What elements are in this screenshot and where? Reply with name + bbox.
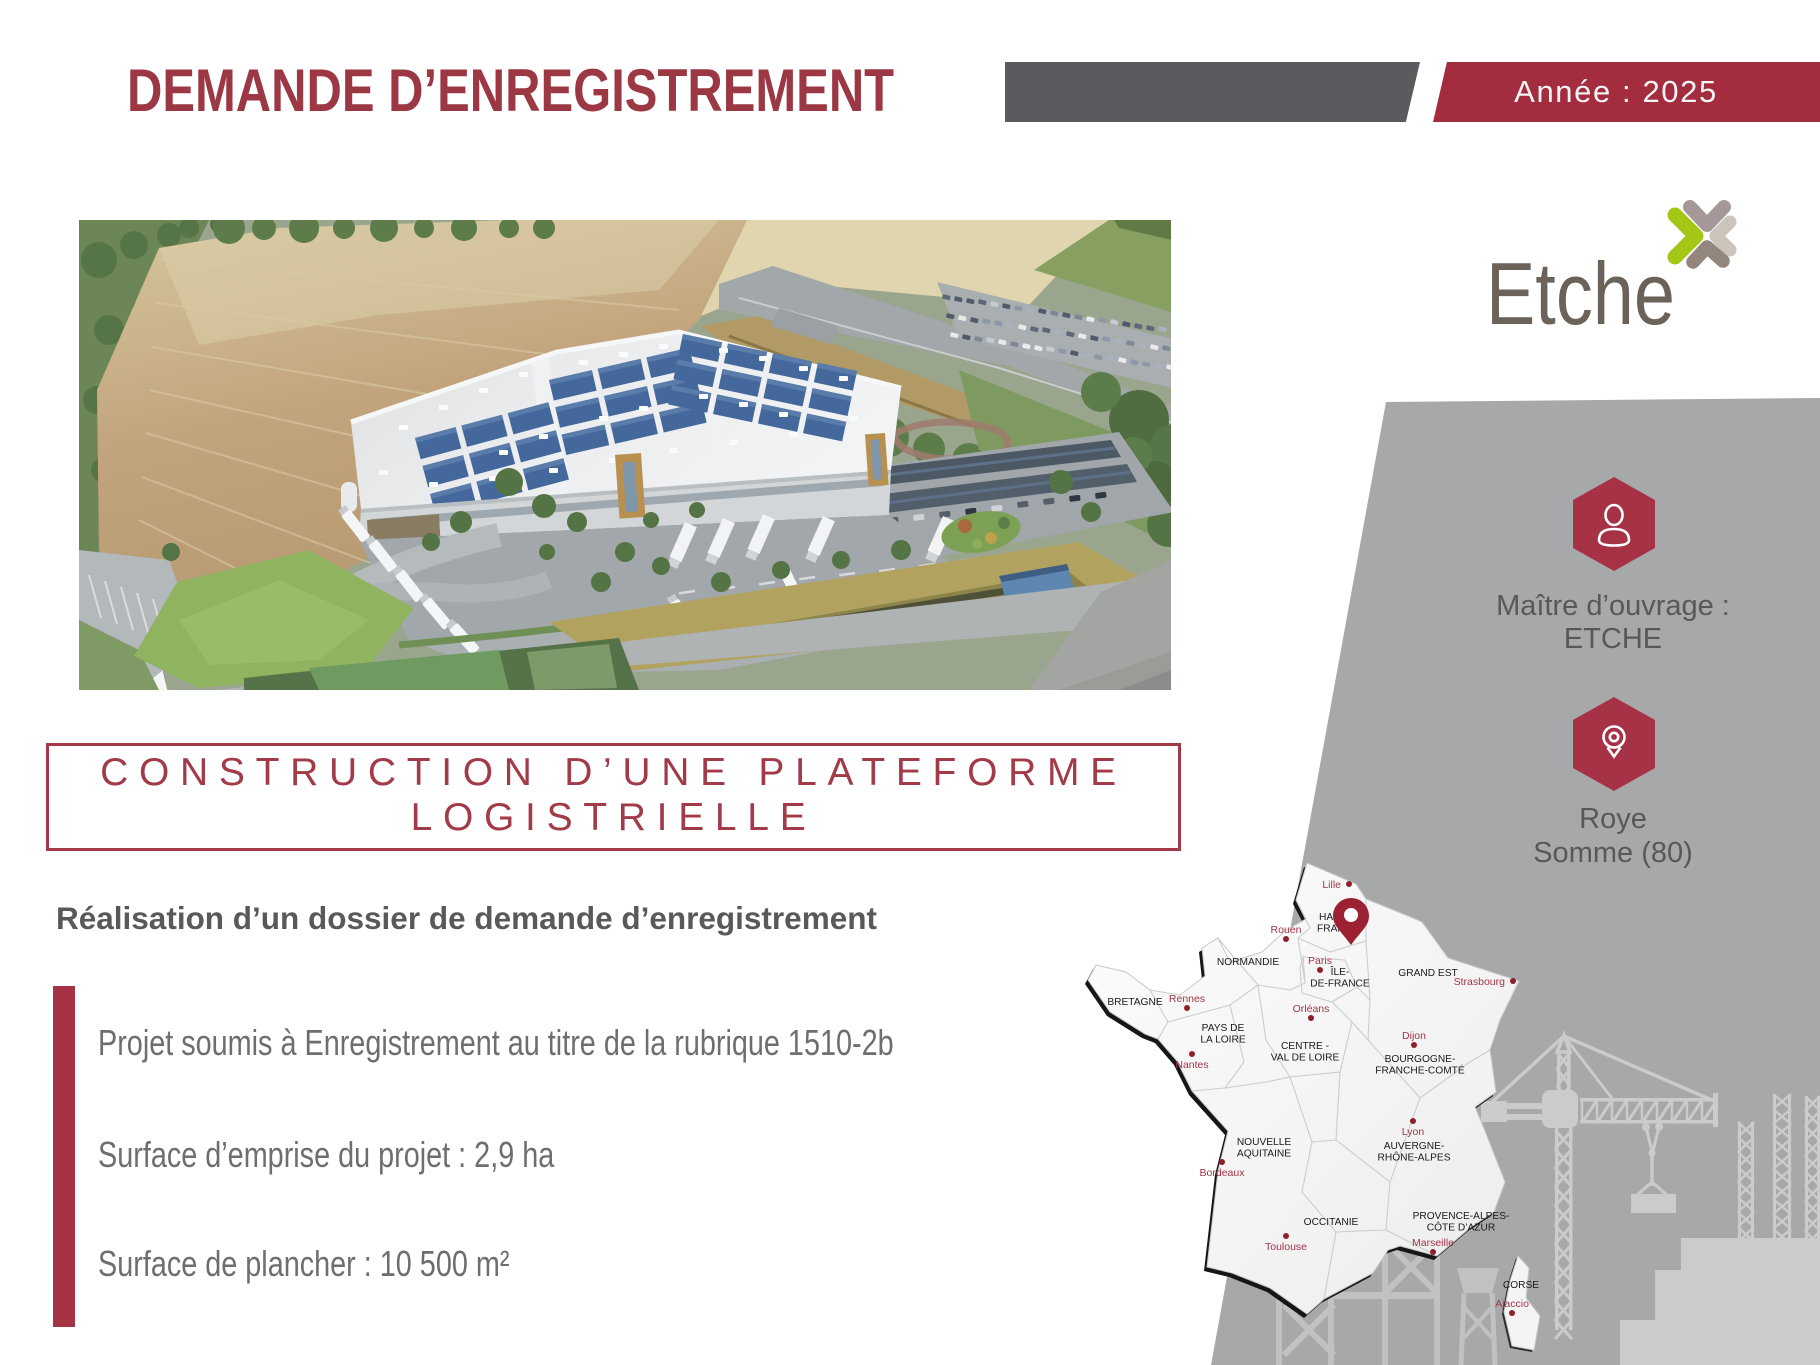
svg-text:FRANCHE-COMTÉ: FRANCHE-COMTÉ (1375, 1064, 1465, 1077)
svg-text:Bordeaux: Bordeaux (1200, 1167, 1246, 1179)
svg-text:Dijon: Dijon (1402, 1030, 1426, 1042)
svg-text:LA LOIRE: LA LOIRE (1200, 1035, 1246, 1046)
svg-text:OCCITANIE: OCCITANIE (1304, 1217, 1359, 1228)
svg-text:Orléans: Orléans (1293, 1003, 1330, 1015)
svg-text:BOURGOGNE-: BOURGOGNE- (1385, 1054, 1456, 1065)
svg-text:AQUITAINE: AQUITAINE (1237, 1149, 1291, 1160)
svg-text:Toulouse: Toulouse (1265, 1241, 1307, 1253)
svg-text:DE-FRANCE: DE-FRANCE (1310, 979, 1370, 990)
svg-text:Ajaccio: Ajaccio (1495, 1298, 1529, 1310)
svg-text:Paris: Paris (1308, 955, 1332, 967)
svg-text:VAL DE LOIRE: VAL DE LOIRE (1271, 1053, 1340, 1064)
svg-text:Lille: Lille (1322, 879, 1341, 891)
svg-text:GRAND EST: GRAND EST (1398, 968, 1457, 979)
svg-text:Lyon: Lyon (1402, 1126, 1425, 1138)
svg-text:Strasbourg: Strasbourg (1454, 976, 1506, 988)
svg-text:NORMANDIE: NORMANDIE (1217, 957, 1279, 968)
svg-text:CORSE: CORSE (1503, 1280, 1539, 1291)
svg-text:NOUVELLE: NOUVELLE (1237, 1137, 1292, 1148)
svg-text:Rennes: Rennes (1169, 993, 1205, 1005)
svg-text:Nantes: Nantes (1175, 1059, 1208, 1071)
svg-text:Marseille: Marseille (1412, 1237, 1454, 1249)
svg-text:RHÔNE-ALPES: RHÔNE-ALPES (1377, 1151, 1450, 1164)
svg-text:PROVENCE-ALPES-: PROVENCE-ALPES- (1413, 1211, 1510, 1222)
svg-text:Rouen: Rouen (1271, 924, 1302, 936)
svg-text:ÎLE-: ÎLE- (1330, 965, 1350, 978)
svg-text:CENTRE -: CENTRE - (1281, 1041, 1329, 1052)
svg-text:PAYS DE: PAYS DE (1202, 1023, 1245, 1034)
svg-text:AUVERGNE-: AUVERGNE- (1384, 1141, 1445, 1152)
svg-text:BRETAGNE: BRETAGNE (1107, 997, 1162, 1008)
svg-text:CÔTE D’AZUR: CÔTE D’AZUR (1427, 1221, 1495, 1234)
